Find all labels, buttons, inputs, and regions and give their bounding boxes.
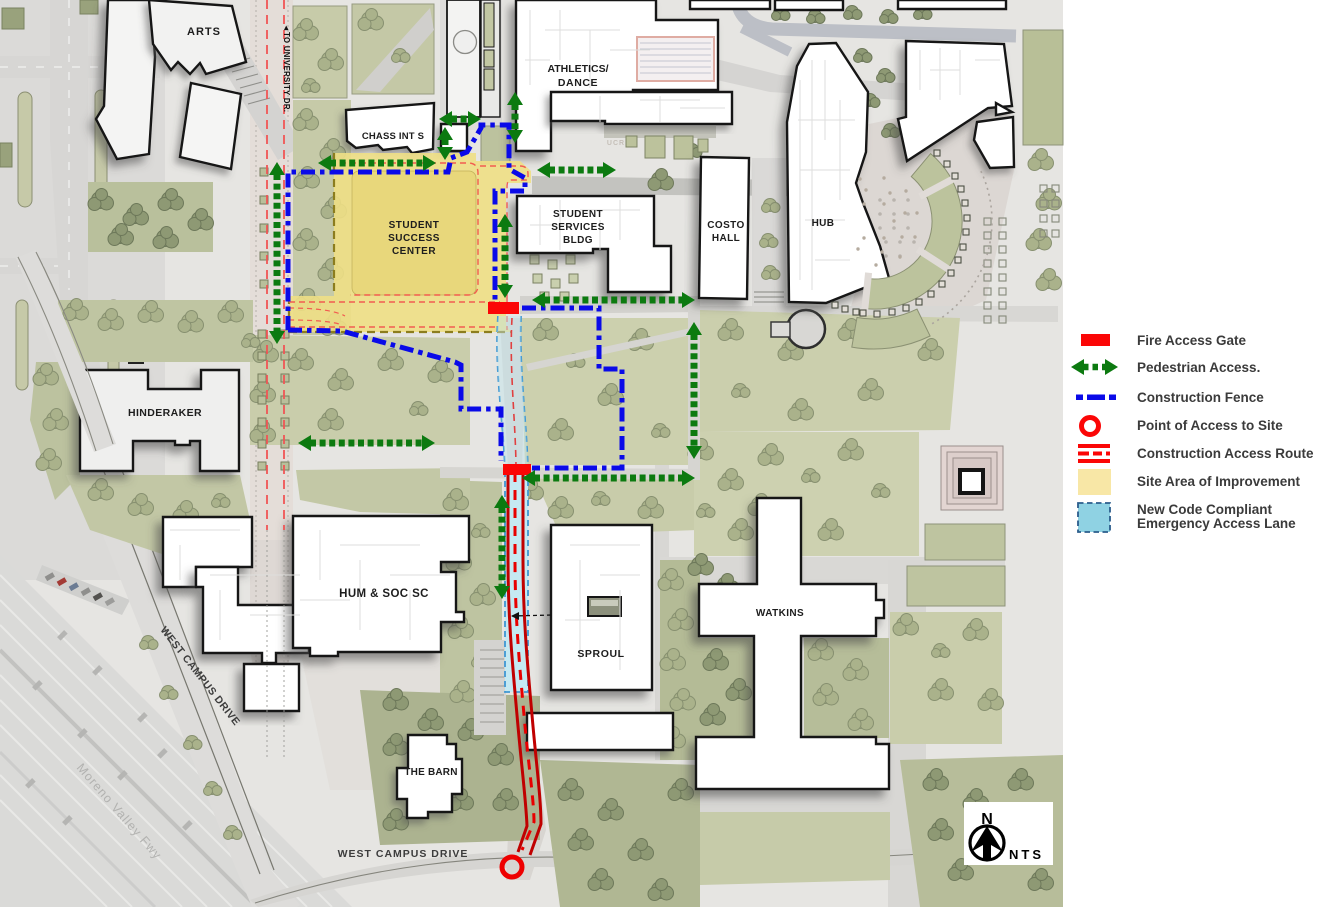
svg-text:ARTS: ARTS [187,26,221,38]
svg-text:NTS: NTS [1009,847,1044,862]
svg-text:DANCE: DANCE [558,77,598,89]
svg-text:SUCCESS: SUCCESS [388,233,440,244]
svg-text:Site Area of Improvement: Site Area of Improvement [1137,474,1301,489]
svg-text:HUM & SOC SC: HUM & SOC SC [339,588,429,600]
svg-text:CENTER: CENTER [392,246,436,257]
svg-text:SPROUL: SPROUL [577,648,624,660]
svg-text:STUDENT: STUDENT [553,209,603,220]
svg-text:SERVICES: SERVICES [551,222,605,233]
svg-text:STUDENT: STUDENT [389,220,440,231]
svg-text:COSTO: COSTO [707,220,744,231]
svg-text:WEST CAMPUS DRIVE: WEST CAMPUS DRIVE [338,848,469,860]
svg-text:Fire Access Gate: Fire Access Gate [1137,333,1247,348]
svg-text:HUB: HUB [812,218,835,229]
svg-text:UCR: UCR [607,140,625,147]
svg-text:Point of Access to Site: Point of Access to Site [1137,418,1283,433]
svg-text:ATHLETICS/: ATHLETICS/ [547,63,608,75]
svg-text:WATKINS: WATKINS [756,608,804,619]
svg-text:Construction Fence: Construction Fence [1137,390,1264,405]
svg-text:New Code Compliant: New Code Compliant [1137,502,1273,517]
svg-text:HALL: HALL [712,233,740,244]
svg-text:BLDG: BLDG [563,235,593,246]
svg-text:Construction Access Route: Construction Access Route [1137,446,1314,461]
svg-text:Pedestrian Access.: Pedestrian Access. [1137,360,1260,375]
svg-text:Emergency Access Lane: Emergency Access Lane [1137,516,1296,531]
svg-text:CHASS INT S: CHASS INT S [362,131,424,142]
svg-text:◄TO UNIVERSITY DR.: ◄TO UNIVERSITY DR. [282,24,291,112]
svg-text:HINDERAKER: HINDERAKER [128,407,202,419]
svg-text:THE BARN: THE BARN [404,767,457,778]
